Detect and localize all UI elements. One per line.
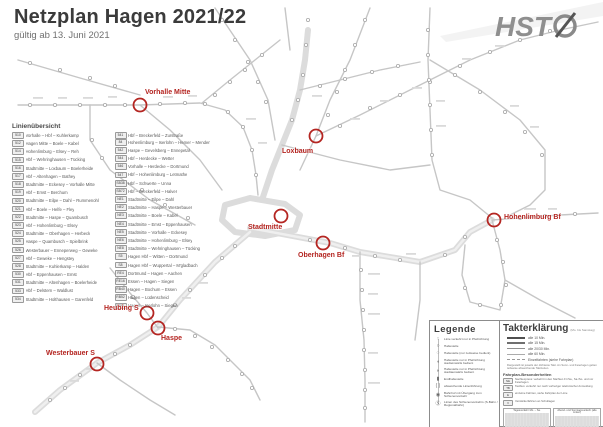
line-number-badge: 530 (12, 271, 24, 278)
page-title: Netzplan Hagen 2021/22 (14, 6, 246, 29)
highlight-label-loxbaum: Loxbaum (282, 148, 313, 155)
line-overview-panel: Linienübersicht 510 Vorhalle – Hbf – Kuh… (12, 123, 210, 309)
legend-symbol-icon: ◉ (434, 393, 442, 398)
special-text: Nachtexpress: verkehrt in den Nächten Fr… (515, 378, 601, 384)
takt-frequencies: alle 10 Min. alle 15 Min. alle 20/30 Min… (503, 336, 601, 362)
mini-box-grid (555, 416, 599, 427)
special-text: Taxibus: verkehrt nur nach vorheriger te… (515, 385, 593, 388)
line-number-badge: 515 (12, 157, 24, 164)
legend-item: Ⓢ Linien des Schienenverkehrs (S-Bahn / … (434, 401, 502, 408)
line-overview-row: 525 Haspe – Quambusch – Spielbrink (12, 238, 108, 245)
line-number-badge: 528 (12, 263, 24, 270)
line-route-text: Hbf – Eppenhausen – Emst (26, 272, 77, 277)
line-overview-row: 542 Haspe – Gevelsberg – Ennepetal (115, 147, 211, 154)
line-overview-row: 518 Stadtmitte – Eckesey – Vorhalle Mitt… (12, 181, 108, 188)
line-number-badge: 519 (12, 189, 24, 196)
special-badge: TB (503, 385, 513, 391)
hst-logo: HST (465, 6, 585, 46)
frequency-label: Einzelfahrten (siehe Fahrplan) (528, 358, 573, 362)
line-number-badge: 542 (115, 147, 127, 154)
takt-subtitle: (Mo. bis Samstag) (570, 328, 594, 332)
legend-item-text: Linien des Schienenverkehrs (S-Bahn / Re… (444, 401, 502, 408)
line-route-text: Vorhalle – Herdecke – Dortmund (128, 164, 189, 169)
line-number-badge: NE3 (115, 212, 127, 219)
legend-symbol-icon: Ⓢ (434, 402, 442, 407)
line-overview-row: 84 Hohenlimburg – Iserlohn – Hemer – Men… (115, 139, 211, 146)
legend-item: ◖ Haltestelle nur in Pfeilrichtung stadt… (434, 359, 502, 366)
line-number-badge: SB38 (115, 180, 127, 187)
line-number-badge: 547 (115, 172, 127, 179)
takt-mini-box-evening: Abend- und Sonntagsverkehr (alle Linien) (553, 408, 601, 427)
takt-box: Takterklärung (Mo. bis Samstag) alle 10 … (499, 320, 603, 427)
takt-frequency-row: alle 15 Min. (507, 341, 601, 345)
line-overview-row: SB38 Hbf – Schwerte – Unna (115, 180, 211, 187)
line-overview-row: S8 Hagen Hbf – Wuppertal – M'gladbach (115, 262, 211, 269)
line-overview-row: 533 Hbf – Delstern – Waldlust (12, 288, 108, 295)
line-overview-row: 534 Stadtmitte – Holthausen – Garenfeld (12, 296, 108, 303)
line-overview-row: 531 Stadtmitte – Altenhagen – Boelerheid… (12, 279, 108, 286)
line-overview-row: 516 Stadtmitte – Loxbaum – Boelerheide (12, 165, 108, 172)
line-route-text: Haspe – Quambusch – Spielbrink (26, 239, 88, 244)
line-overview-row: 522 Stadtmitte – Haspe – Quambusch (12, 214, 108, 221)
line-route-text: Hagen – Bochum – Essen (128, 287, 177, 292)
legend-item-text: Haltestelle nur in Pfeilrichtung stadtau… (444, 368, 502, 375)
line-route-text: Hbf – Breckerfeld – Zurstraße (128, 133, 183, 138)
line-overview-row: 528 Stadtmitte – Kuhlerkamp – Halden (12, 263, 108, 270)
frequency-line-sample (507, 348, 525, 349)
line-overview-row: RE16 Essen – Hagen – Siegen (115, 278, 211, 285)
line-number-badge: 541 (115, 132, 127, 139)
line-route-text: Stadtmitte – Eilpe – Dahl – Rummenohl (26, 198, 99, 203)
line-number-badge: NE1 (115, 196, 127, 203)
line-route-text: Stadtmitte – Oberhagen – Herbeck (26, 231, 91, 236)
line-overview-row: 523 Hbf – Hohenlimburg – Elsey (12, 222, 108, 229)
legend-symbol-icon: ( ) (434, 384, 442, 389)
line-route-text: Hbf – Altenhagen – Bathey (26, 174, 76, 179)
takt-specials: NE Nachtexpress: verkehrt in den Nächten… (503, 378, 601, 406)
line-number-badge: 84 (115, 139, 127, 146)
line-overview-row: 521 Hbf – Boele – Helfe – Fley (12, 206, 108, 213)
legend-item: ◉ Bahnhof mit Übergang zum Schienenverke… (434, 392, 502, 399)
line-number-badge: RE4 (115, 270, 127, 277)
special-badge: V (503, 400, 513, 406)
takt-frequency-row: alle 20/30 Min. (507, 347, 601, 351)
line-overview-row: 514 Hohenlimburg – Elsey – Reh (12, 148, 108, 155)
line-route-text: Stadtmitte – Vorhalle – Eckesey (128, 230, 187, 235)
takt-note: Dargestellt ist jeweils der dichteste Ta… (507, 364, 601, 371)
line-route-text: Essen – Hagen – Siegen (128, 279, 174, 284)
line-overview-row: NE1 Stadtmitte – Eilpe – Dahl (115, 196, 211, 203)
legend-item-text: Bahnhof mit Übergang zum Schienenverkehr (444, 392, 502, 399)
line-number-badge: RB52 (115, 294, 127, 301)
highlight-label-oberhagen-bf: Oberhagen Bf (298, 252, 344, 259)
line-route-text: Stadtmitte – Haspe – Quambusch (26, 215, 89, 220)
line-route-text: Stadtmitte – Altenhagen – Boelerheide (26, 280, 97, 285)
line-number-badge: 527 (12, 255, 24, 262)
line-number-badge: 524 (12, 230, 24, 237)
line-number-badge: RE16 (115, 278, 127, 285)
line-overview-row: NE5 Stadtmitte – Vorhalle – Eckesey (115, 229, 211, 236)
frequency-line-sample (507, 354, 525, 355)
line-overview-row: SB72 Hbf – Breckerfeld – Halver (115, 188, 211, 195)
line-number-badge: 517 (12, 173, 24, 180)
legend-box: Legende ↑ Linie verkehrt nur in Pfeilric… (429, 320, 506, 427)
line-overview-right-column: 84 Hohenlimburg – Iserlohn – Hemer – Men… (115, 139, 211, 310)
line-route-text: Hbf – Delstern – Waldlust (26, 288, 73, 293)
line-number-badge: 544 (115, 155, 127, 162)
frequency-label: alle 20/30 Min. (528, 347, 550, 351)
line-route-text: Hagen Hbf – Wuppertal – M'gladbach (128, 263, 198, 268)
line-route-text: Hbf – Hohenlimburg – Elsey (26, 223, 78, 228)
line-number-badge: 521 (12, 206, 24, 213)
takt-specials-title: Fahrplan-Besonderheiten (503, 372, 601, 377)
line-route-text: Stadtmitte – Haspe – Westerbauer (128, 205, 192, 210)
line-overview-row: 530 Hbf – Eppenhausen – Emst (12, 271, 108, 278)
legend-item: ○ Haltestelle (434, 344, 502, 349)
line-route-text: Stadtmitte – Eckesey – Vorhalle Mitte (26, 182, 95, 187)
highlight-label-stadtmitte: Stadtmitte (248, 224, 282, 231)
legend-symbol-icon: ▮ (434, 377, 442, 382)
hst-logo-mark (555, 13, 575, 37)
line-overview-row: 541 Hbf – Breckerfeld – Zurstraße (115, 132, 211, 139)
line-number-badge: 531 (12, 279, 24, 286)
legend-item: ◌ Haltestelle (nur zeitweise bedient) (434, 351, 502, 356)
line-number-badge: 546 (115, 163, 127, 170)
line-number-badge: NE5 (115, 229, 127, 236)
highlight-label-haspe: Haspe (161, 335, 182, 342)
legend-item: ( ) abweichende Linienführung (434, 384, 502, 389)
line-overview-row: 546 Vorhalle – Herdecke – Dortmund (115, 163, 211, 170)
legend-item-text: abweichende Linienführung (444, 385, 482, 389)
highlight-label-heubing-s: Heubing S (104, 305, 139, 312)
legend-item-text: Haltestelle (nur zeitweise bedient) (444, 352, 490, 356)
special-text: einzelne Fahrten, siehe Fahrplan der Lin… (515, 392, 567, 395)
legend-item: ↑ Linie verkehrt nur in Pfeilrichtung (434, 337, 502, 342)
line-route-text: Stadtmitte – Holthausen – Garenfeld (26, 297, 94, 302)
line-number-badge: 512 (12, 140, 24, 147)
frequency-line-sample (507, 337, 525, 339)
line-number-badge: RB40 (115, 286, 127, 293)
line-number-badge: 533 (12, 288, 24, 295)
page-subtitle: gültig ab 13. Juni 2021 (14, 30, 246, 41)
line-number-badge: NE2 (115, 204, 127, 211)
line-number-badge: 522 (12, 214, 24, 221)
highlight-ring-stadtmitte (275, 210, 288, 223)
line-overview-row: NE8 Stadtmitte – Wehringhausen – Tücking (115, 245, 211, 252)
line-route-text: Stadtmitte – Boele – Kabel (128, 213, 178, 218)
highlight-label-hohenlimburg-bf: Hohenlimburg Bf (504, 214, 561, 221)
line-number-badge: 534 (12, 296, 24, 303)
line-route-text: Hbf – Wehringhausen – Tücking (26, 157, 86, 162)
special-badge: E (503, 392, 513, 398)
legend-item-text: Endhaltestelle (444, 378, 463, 382)
frequency-label: alle 60 Min. (528, 352, 545, 356)
mini-box-title: Tagesverkehr Mo. – Sa. (505, 410, 549, 413)
highlight-label-westerbauer-s: Westerbauer S (46, 350, 95, 357)
line-route-text: Hagen Mitte – Boele – Kabel (26, 141, 79, 146)
line-number-badge: 510 (12, 132, 24, 139)
takt-title: Takterklärung (503, 323, 568, 334)
line-route-text: Hbf – Breckerfeld – Halver (128, 189, 177, 194)
line-overview-row: 524 Stadtmitte – Oberhagen – Herbeck (12, 230, 108, 237)
legend-item: ▮ Endhaltestelle (434, 377, 502, 382)
line-overview-row: NE6 Stadtmitte – Hohenlimburg – Elsey (115, 237, 211, 244)
line-route-text: Haspe – Gevelsberg – Ennepetal (128, 148, 190, 153)
line-overview-row: 512 Hagen Mitte – Boele – Kabel (12, 140, 108, 147)
line-overview-row: 517 Hbf – Altenhagen – Bathey (12, 173, 108, 180)
takt-special-row: E einzelne Fahrten, siehe Fahrplan der L… (503, 392, 601, 398)
line-route-text: Vorhalle – Hbf – Kuhlerkamp (26, 133, 79, 138)
line-number-badge: 523 (12, 222, 24, 229)
line-overview-row: 527 Hbf – Geweke – Hengstey (12, 255, 108, 262)
line-route-text: Hbf – Geweke – Hengstey (26, 256, 75, 261)
mini-box-grid (505, 413, 549, 427)
line-route-text: Stadtmitte – Wehringhausen – Tücking (128, 246, 200, 251)
special-badge: NE (503, 378, 513, 384)
frequency-label: alle 10 Min. (528, 336, 545, 340)
legend-symbol-icon: ◌ (434, 351, 442, 356)
legend-title: Legende (434, 324, 502, 335)
takt-frequency-row: alle 10 Min. (507, 336, 601, 340)
takt-special-row: V Verstärkerfahrten an Schultagen (503, 400, 601, 406)
mini-box-title: Abend- und Sonntagsverkehr (alle Linien) (555, 410, 599, 416)
highlight-label-vorhalle-mitte: Vorhalle Mitte (145, 89, 190, 96)
line-number-badge: 516 (12, 165, 24, 172)
line-number-badge: 526 (12, 247, 24, 254)
line-number-badge: S5 (115, 253, 127, 260)
line-overview-row: NE3 Stadtmitte – Boele – Kabel (115, 212, 211, 219)
line-number-badge: S8 (115, 262, 127, 269)
legend-symbol-icon: ◗ (434, 369, 442, 374)
line-route-text: Hohenlimburg – Iserlohn – Hemer – Menden (128, 140, 210, 145)
legend-item: ◗ Haltestelle nur in Pfeilrichtung stadt… (434, 368, 502, 375)
takt-special-row: TB Taxibus: verkehrt nur nach vorheriger… (503, 385, 601, 391)
line-overview-row: S5 Hagen Hbf – Witten – Dortmund (115, 253, 211, 260)
legend-symbol-icon: ○ (434, 344, 442, 349)
line-route-text: Stadtmitte – Kuhlerkamp – Halden (26, 264, 90, 269)
line-route-text: Dortmund – Hagen – Aachen (128, 271, 182, 276)
header: Netzplan Hagen 2021/22 gültig ab 13. Jun… (14, 6, 246, 41)
line-overview-row: RB40 Hagen – Bochum – Essen (115, 286, 211, 293)
legend-item-text: Haltestelle (444, 345, 458, 349)
line-route-text: Hbf – Schwerte – Unna (128, 181, 171, 186)
line-number-badge: 518 (12, 181, 24, 188)
takt-frequency-row: alle 60 Min. (507, 352, 601, 356)
line-route-text: Hohenlimburg – Elsey – Reh (26, 149, 79, 154)
frequency-line-sample (507, 342, 525, 344)
line-overview-row: 544 Hbf – Herdecke – Wetter (115, 155, 211, 162)
line-route-text: Hbf – Herdecke – Wetter (128, 156, 174, 161)
special-text: Verstärkerfahrten an Schultagen (515, 400, 555, 403)
line-number-badge: NE4 (115, 221, 127, 228)
line-overview-title: Linienübersicht (12, 123, 210, 130)
line-overview-row: 520 Stadtmitte – Eilpe – Dahl – Rummenoh… (12, 198, 108, 205)
line-number-badge: NE8 (115, 245, 127, 252)
line-number-badge: 520 (12, 198, 24, 205)
line-route-text: Hagen Hbf – Witten – Dortmund (128, 254, 188, 259)
line-route-text: Hbf – Boele – Helfe – Fley (26, 207, 75, 212)
line-overview-row: RE4 Dortmund – Hagen – Aachen (115, 270, 211, 277)
line-route-text: Stadtmitte – Loxbaum – Boelerheide (26, 166, 94, 171)
line-overview-row: 547 Hbf – Hohenlimburg – Letmathe (115, 172, 211, 179)
legend-item-text: Linie verkehrt nur in Pfeilrichtung (444, 338, 489, 342)
line-route-text: Stadtmitte – Eilpe – Dahl (128, 197, 174, 202)
line-overview-row: 510 Vorhalle – Hbf – Kuhlerkamp (12, 132, 108, 139)
takt-mini-box-day: Tagesverkehr Mo. – Sa. (503, 408, 551, 427)
line-route-text: Hbf – Hohenlimburg – Letmathe (128, 172, 187, 177)
netzplan-page: Netzplan Hagen 2021/22 gültig ab 13. Jun… (0, 0, 603, 427)
takt-special-row: NE Nachtexpress: verkehrt in den Nächten… (503, 378, 601, 384)
hst-logo-text: HST (495, 11, 554, 42)
frequency-label: alle 15 Min. (528, 341, 545, 345)
line-overview-row: 526 Westerbauer – Enneperweg – Geweke (12, 247, 108, 254)
legend-items: ↑ Linie verkehrt nur in Pfeilrichtung ○ … (434, 337, 502, 408)
line-number-badge: 525 (12, 238, 24, 245)
line-number-badge: 514 (12, 148, 24, 155)
line-route-text: Hagen – Lüdenscheid (128, 295, 169, 300)
legend-symbol-icon: ↑ (434, 337, 442, 342)
line-overview-row: NE4 Stadtmitte – Emst – Eppenhausen (115, 221, 211, 228)
line-route-text: Hbf – Emst – Berchum (26, 190, 68, 195)
legend-symbol-icon: ◖ (434, 360, 442, 365)
line-overview-row: NE2 Stadtmitte – Haspe – Westerbauer (115, 204, 211, 211)
line-overview-row: RB52 Hagen – Lüdenscheid (115, 294, 211, 301)
legend-item-text: Haltestelle nur in Pfeilrichtung stadtei… (444, 359, 502, 366)
line-overview-row: 519 Hbf – Emst – Berchum (12, 189, 108, 196)
line-route-text: Stadtmitte – Emst – Eppenhausen (128, 222, 192, 227)
line-route-text: Stadtmitte – Hohenlimburg – Elsey (128, 238, 192, 243)
frequency-line-sample (507, 359, 525, 360)
line-number-badge: NE6 (115, 237, 127, 244)
takt-frequency-row: Einzelfahrten (siehe Fahrplan) (507, 358, 601, 362)
line-overview-row: 515 Hbf – Wehringhausen – Tücking (12, 157, 108, 164)
line-number-badge: SB72 (115, 188, 127, 195)
line-route-text: Westerbauer – Enneperweg – Geweke (26, 248, 98, 253)
